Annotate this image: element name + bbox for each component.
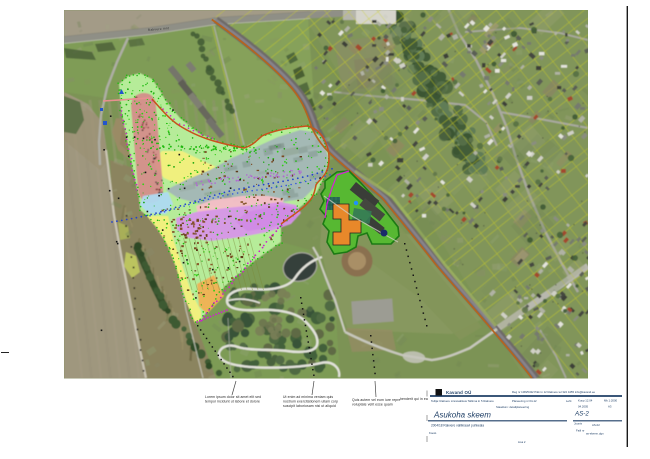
svg-text:Faili nr: Faili nr: [576, 428, 584, 432]
svg-text:Staadium: detailplaneering: Staadium: detailplaneering: [496, 405, 530, 409]
svg-text:Planeering nr 04-12: Planeering nr 04-12: [512, 399, 537, 403]
svg-text:Lisa 2: Lisa 2: [518, 440, 526, 444]
svg-text:AS-02: AS-02: [592, 423, 600, 427]
svg-text:Kavand OÜ: Kavand OÜ: [446, 390, 471, 395]
svg-text:suscipit laboriosam nisi ut al: suscipit laboriosam nisi ut aliquid: [283, 404, 336, 408]
svg-text:Tellija: Rakvere Linnavalitsus: Tellija: Rakvere Linnavalitsus Tallinna …: [431, 399, 494, 403]
svg-text:2004/18 Rakvere vallikraavi p: 2004/18 Rakvere vallikraavi puhkeala: [431, 424, 484, 428]
svg-text:voluptate velit esse quam: voluptate velit esse quam: [352, 403, 393, 407]
svg-text:Kuup 12.04: Kuup 12.04: [578, 398, 593, 402]
svg-text:Koost.: Koost.: [429, 431, 437, 435]
svg-text:A3: A3: [608, 404, 612, 408]
svg-text:Reg nr 10825432 Pikk tn 12 R: Reg nr 10825432 Pikk tn 12 Rakvere tel 3…: [512, 390, 596, 394]
svg-text:henderit qui in ea: henderit qui in ea: [400, 397, 428, 401]
svg-text:Asukoha skeem: Asukoha skeem: [433, 411, 491, 420]
svg-text:tempor incidunt ut labore et d: tempor incidunt ut labore et dolore: [205, 400, 260, 404]
svg-text:Ut enim ad minima veniam quis: Ut enim ad minima veniam quis: [283, 395, 333, 399]
svg-text:AS-2: AS-2: [574, 411, 589, 418]
svg-text:as-skeem.dgn: as-skeem.dgn: [586, 431, 604, 435]
svg-text:Leht: Leht: [566, 399, 572, 403]
svg-text:Lorem ipsum dolor sit amet eli: Lorem ipsum dolor sit amet elit sed: [205, 395, 261, 399]
svg-text:Joonis: Joonis: [574, 421, 583, 425]
svg-text:Mk 1:2000: Mk 1:2000: [604, 398, 618, 402]
svg-text:04.2005: 04.2005: [578, 404, 589, 408]
svg-text:nostrum exercitationem ullam c: nostrum exercitationem ullam corp: [283, 400, 338, 404]
svg-text:Quis autem vel eum iure repre: Quis autem vel eum iure repre: [352, 398, 401, 402]
